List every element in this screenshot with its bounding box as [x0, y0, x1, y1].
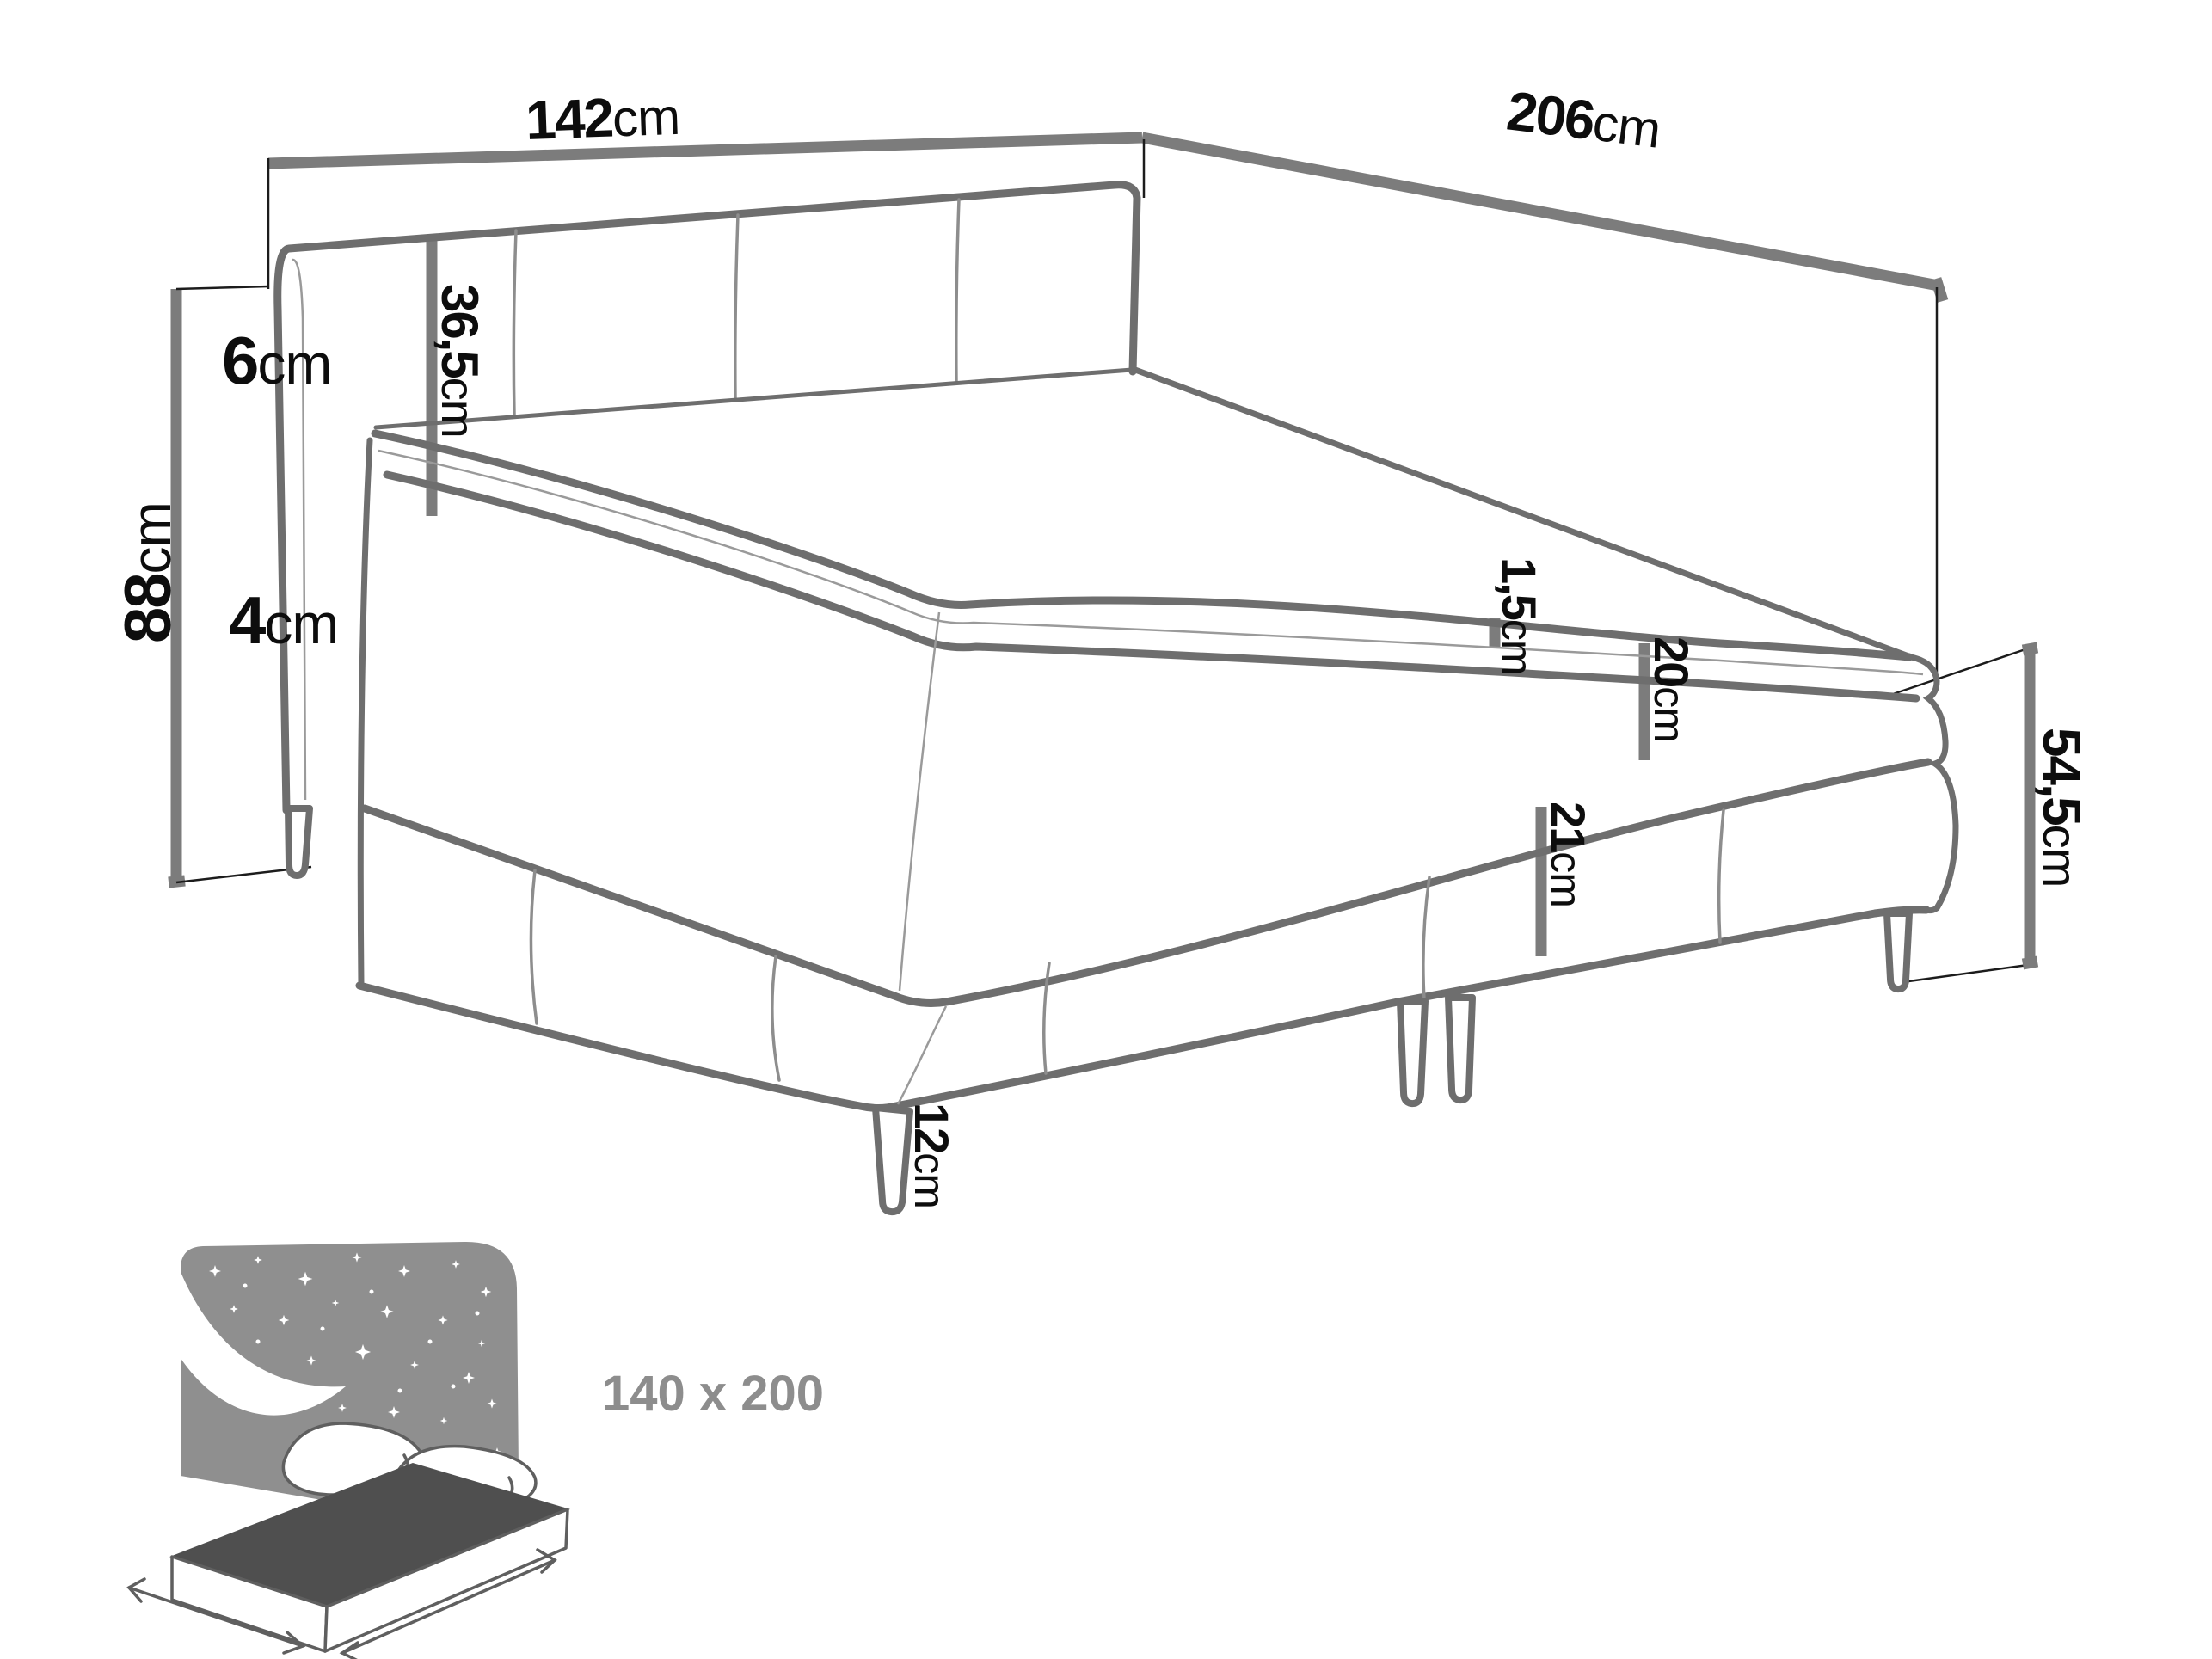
- dim-label-206cm: 206cm: [1503, 79, 1663, 159]
- wall-lines: [169, 138, 2028, 982]
- dim-label-142cm: 142cm: [525, 84, 680, 151]
- dim-label-88cm: 88cm: [112, 502, 185, 643]
- dim-label-21cm: 21cm: [1541, 802, 1595, 907]
- base-top-seam: [365, 762, 1928, 1003]
- tick-54-5-cap-bottom: [2023, 962, 2037, 964]
- dim-label-4cm: 4cm: [229, 582, 338, 658]
- dim-label-6cm: 6cm: [222, 323, 331, 398]
- diagram-page: 142cm 206cm 6cm 36,5cm 88cm 4cm 1,5cm 20…: [0, 0, 2212, 1659]
- headboard-seam-3: [956, 200, 959, 384]
- headboard-leg: [288, 808, 310, 876]
- dim-label-54-5cm: 54,5cm: [2031, 728, 2091, 887]
- base-corner-crease: [898, 1006, 946, 1104]
- dim-label-20cm: 20cm: [1644, 636, 1699, 742]
- rear-right-leg: [1887, 913, 1909, 989]
- base-seam-1: [531, 870, 537, 1023]
- size-badge-label: 140 x 200: [602, 1366, 824, 1422]
- front-corner-leg: [876, 1108, 910, 1212]
- headboard-outline: [278, 185, 1137, 810]
- mattress-corner-crease: [900, 612, 939, 991]
- dim-label-12cm: 12cm: [905, 1103, 959, 1208]
- bed-drawing: [278, 185, 1956, 1212]
- middle-leg-left: [1400, 1001, 1425, 1103]
- dim-label-1-5cm: 1,5cm: [1492, 557, 1546, 675]
- topper-top-edge: [375, 433, 1909, 657]
- base-seam-5: [1719, 810, 1724, 943]
- extension-545-bottom: [1902, 965, 2028, 982]
- dimension-labels: 142cm 206cm 6cm 36,5cm 88cm 4cm 1,5cm 20…: [112, 79, 2091, 1208]
- headboard-seam-1: [513, 230, 516, 415]
- wall-top-edge-206: [1142, 138, 1939, 286]
- bed-dimension-diagram: 142cm 206cm 6cm 36,5cm 88cm 4cm 1,5cm 20…: [0, 0, 2212, 1659]
- base-seam-2: [772, 956, 779, 1080]
- base-bottom-edge: [359, 910, 1926, 1109]
- headboard-seam-2: [735, 215, 738, 399]
- base-seam-4: [1423, 877, 1429, 999]
- bed-left-side-edge: [360, 440, 370, 986]
- dim-label-36-5cm: 36,5cm: [431, 284, 488, 438]
- mattress-back-edge: [376, 370, 1132, 427]
- middle-leg-right: [1448, 998, 1472, 1100]
- extension-6cm: [176, 286, 268, 289]
- wall-top-edge-142: [268, 138, 1142, 163]
- size-icon: 140 x 200: [129, 1238, 824, 1659]
- tick-54-5-cap-top: [2023, 648, 2037, 650]
